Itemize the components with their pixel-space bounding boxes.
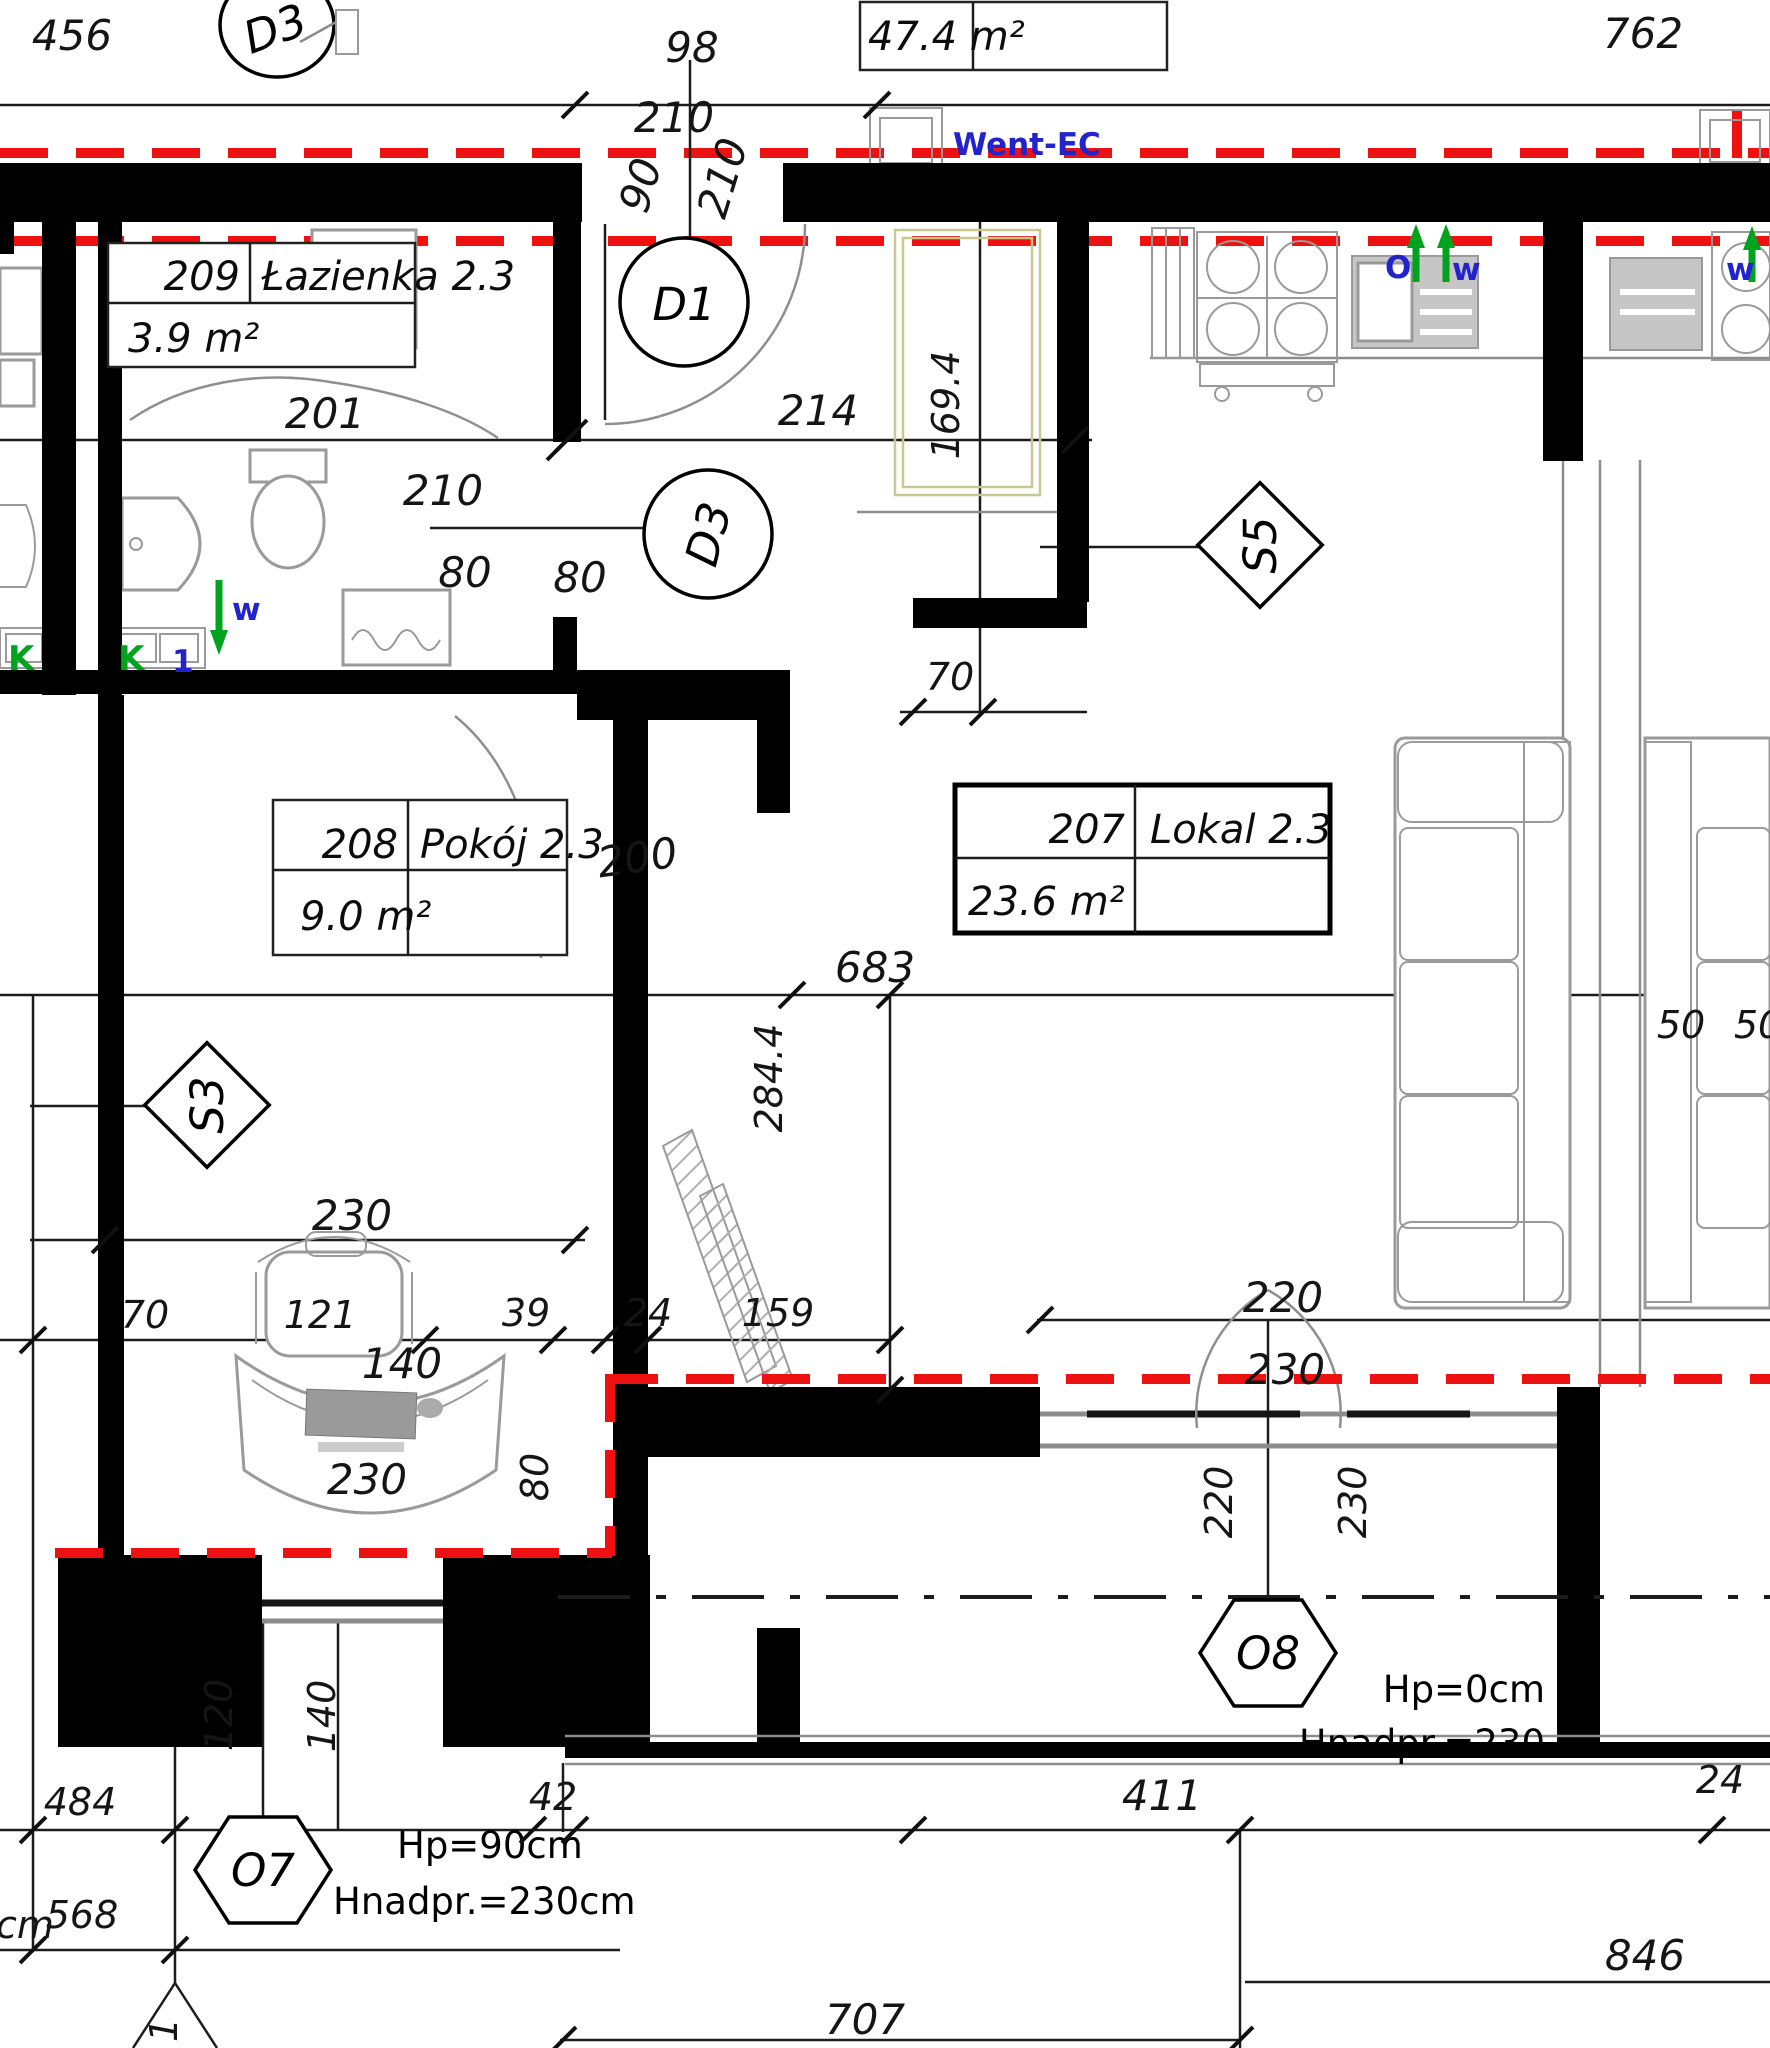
o7-hp-label: Hp=90cm bbox=[397, 1824, 583, 1867]
dim-159: 159 bbox=[742, 1291, 815, 1335]
wall-lokal-bottom bbox=[617, 1387, 1040, 1457]
window-o7-label: O7 bbox=[231, 1844, 295, 1897]
wall-left-outer bbox=[42, 217, 76, 695]
burner-4 bbox=[1275, 303, 1327, 355]
room-209-number: 209 bbox=[164, 254, 240, 300]
dim-568: 568 bbox=[46, 1893, 119, 1937]
dim-70-kitchen: 70 bbox=[926, 655, 974, 699]
wall-top-left bbox=[0, 163, 582, 222]
went-ec-label: Went-EC bbox=[953, 127, 1101, 163]
wall-kitchen-stub bbox=[913, 598, 1087, 628]
window-symbol-s5: S5 bbox=[1198, 483, 1322, 607]
floor-plan: 209 Łazienka 2.3 3.9 m² 208 Pokój 2.3 9.… bbox=[0, 0, 1770, 2048]
k-mark-left: K bbox=[8, 639, 36, 679]
toilet-bowl bbox=[252, 476, 324, 568]
water-arrow-down-head bbox=[210, 630, 228, 655]
wall-left-room bbox=[98, 695, 124, 1555]
dim-230-desk: 230 bbox=[327, 1455, 407, 1504]
dim-200: 200 bbox=[594, 828, 680, 888]
bathtub bbox=[122, 498, 200, 590]
floor-plan-canvas: 209 Łazienka 2.3 3.9 m² 208 Pokój 2.3 9.… bbox=[0, 0, 1770, 2048]
dim-210-bath: 210 bbox=[403, 466, 483, 515]
mouse bbox=[417, 1398, 443, 1418]
dim-50-b: 50 bbox=[1734, 1003, 1770, 1047]
wall-balcony-pier bbox=[757, 1628, 800, 1748]
dim-90-door: 90 bbox=[609, 152, 671, 217]
room-207-name: Lokal 2.3 bbox=[1150, 807, 1332, 853]
room-208-name: Pokój 2.3 bbox=[420, 822, 604, 868]
dim-50-a: 50 bbox=[1657, 1003, 1705, 1047]
room-208-area: 9.0 m² bbox=[300, 894, 431, 940]
dim-284-4: 284.4 bbox=[747, 1024, 791, 1133]
dim-169-4: 169.4 bbox=[924, 351, 968, 460]
door-symbol-d3-mid: D3 bbox=[644, 470, 772, 598]
vent-one-mark: 1 bbox=[172, 644, 194, 680]
room-table-208: 208 Pokój 2.3 9.0 m² bbox=[273, 800, 604, 955]
dim-456: 456 bbox=[32, 11, 112, 60]
wall-left-sliver bbox=[0, 222, 14, 254]
dim-762: 762 bbox=[1603, 9, 1683, 58]
dim-80-bath: 80 bbox=[438, 548, 491, 597]
wall-door-jamb bbox=[553, 617, 577, 694]
wall-top-right bbox=[783, 163, 1770, 222]
dim-140-desk: 140 bbox=[362, 1339, 442, 1388]
window-symbol-s3: S3 bbox=[145, 1043, 269, 1167]
balcony-slab bbox=[565, 1742, 1770, 1758]
room-table-207: 207 Lokal 2.3 23.6 m² bbox=[955, 785, 1332, 933]
dim-24-mid: 24 bbox=[624, 1291, 672, 1335]
dim-230-window: 230 bbox=[1245, 1345, 1325, 1394]
radiator-box bbox=[343, 590, 450, 665]
wall-bottom-mid-pier bbox=[443, 1555, 650, 1747]
neighbor-fixture-2 bbox=[0, 360, 34, 406]
section-marker-label: 1 bbox=[142, 2018, 186, 2042]
dim-121: 121 bbox=[284, 1293, 357, 1337]
dim-70-left: 70 bbox=[121, 1293, 169, 1337]
dim-411: 411 bbox=[1122, 1771, 1202, 1820]
window-symbol-o8: O8 bbox=[1200, 1600, 1336, 1706]
w-mark-bath: w bbox=[232, 592, 261, 628]
burner-1 bbox=[1207, 241, 1259, 293]
dim-220-vertical: 220 bbox=[1197, 1466, 1241, 1539]
room-207-number: 207 bbox=[1049, 807, 1126, 853]
dim-24-right: 24 bbox=[1696, 1758, 1744, 1802]
o8-hp-label: Hp=0cm bbox=[1383, 1668, 1545, 1711]
dim-210-door: 210 bbox=[687, 132, 757, 223]
dim-120: 120 bbox=[197, 1679, 241, 1752]
wall-corridor bbox=[0, 670, 553, 694]
burner-3 bbox=[1207, 303, 1259, 355]
stove-foot-a bbox=[1215, 387, 1229, 401]
door-symbol-d1: D1 bbox=[620, 238, 748, 366]
area-total-value: 47.4 m² bbox=[868, 14, 1025, 60]
neighbor-sink bbox=[1610, 258, 1702, 350]
stove-handle bbox=[1200, 364, 1334, 386]
door-symbol-d3-top: D3 bbox=[220, 0, 358, 77]
stove-foot-b bbox=[1308, 387, 1322, 401]
wall-hall-lokal bbox=[757, 718, 790, 813]
o7-hnadpr-label: Hnadpr.=230cm bbox=[333, 1880, 636, 1923]
k-mark-right: K bbox=[118, 639, 146, 679]
dim-230-left: 230 bbox=[312, 1191, 392, 1240]
w-mark-neighbor: w bbox=[1726, 252, 1755, 288]
kitchen-cabinet bbox=[1152, 228, 1194, 358]
burner-2 bbox=[1275, 241, 1327, 293]
room-207-area: 23.6 m² bbox=[968, 879, 1125, 925]
monitor bbox=[305, 1389, 417, 1439]
dim-39: 39 bbox=[502, 1291, 550, 1335]
neighbor-bathtub-end bbox=[0, 505, 35, 587]
dim-80-desk: 80 bbox=[513, 1453, 557, 1501]
wall-kitchen-vertical bbox=[1057, 222, 1089, 602]
window-s3-label: S3 bbox=[181, 1076, 234, 1133]
o8-hnadpr-label: Hnadpr.=230 bbox=[1299, 1722, 1545, 1765]
window-o8-label: O8 bbox=[1236, 1627, 1300, 1680]
window-s5-label: S5 bbox=[1234, 516, 1287, 573]
w-mark-kitchen: w bbox=[1452, 252, 1481, 288]
dim-201: 201 bbox=[285, 389, 365, 438]
dim-210-top: 210 bbox=[634, 93, 714, 142]
o-mark: O bbox=[1385, 250, 1411, 286]
dim-220-window: 220 bbox=[1243, 1273, 1323, 1322]
area-total-table: 47.4 m² bbox=[860, 2, 1167, 70]
dim-230-vertical: 230 bbox=[1331, 1466, 1375, 1539]
room-209-area: 3.9 m² bbox=[128, 316, 259, 362]
neighbor-fixture bbox=[0, 268, 42, 354]
dim-846: 846 bbox=[1605, 1931, 1685, 1980]
dim-707: 707 bbox=[825, 1995, 905, 2044]
dim-80-room: 80 bbox=[553, 553, 606, 602]
dim-214: 214 bbox=[778, 386, 858, 435]
cm-partial-label: cm bbox=[0, 1903, 54, 1947]
door-d1-label: D1 bbox=[652, 278, 715, 331]
keyboard bbox=[318, 1442, 404, 1452]
wall-bath-hall bbox=[553, 222, 581, 442]
room-table-209: 209 Łazienka 2.3 3.9 m² bbox=[108, 243, 515, 367]
wall-corridor-thick bbox=[577, 670, 790, 720]
room-209-name: Łazienka 2.3 bbox=[261, 254, 515, 300]
dim-140-window: 140 bbox=[300, 1680, 344, 1753]
dim-484: 484 bbox=[44, 1780, 117, 1824]
wall-party-top bbox=[1543, 163, 1583, 461]
wall-bottom-right-pier bbox=[1557, 1387, 1600, 1747]
dim-98: 98 bbox=[665, 23, 718, 72]
window-symbol-o7: O7 bbox=[195, 1817, 331, 1923]
section-marker: 1 bbox=[133, 1983, 217, 2048]
dim-42: 42 bbox=[529, 1775, 577, 1819]
neighbor-burner-2 bbox=[1722, 305, 1770, 353]
room-208-number: 208 bbox=[322, 822, 398, 868]
